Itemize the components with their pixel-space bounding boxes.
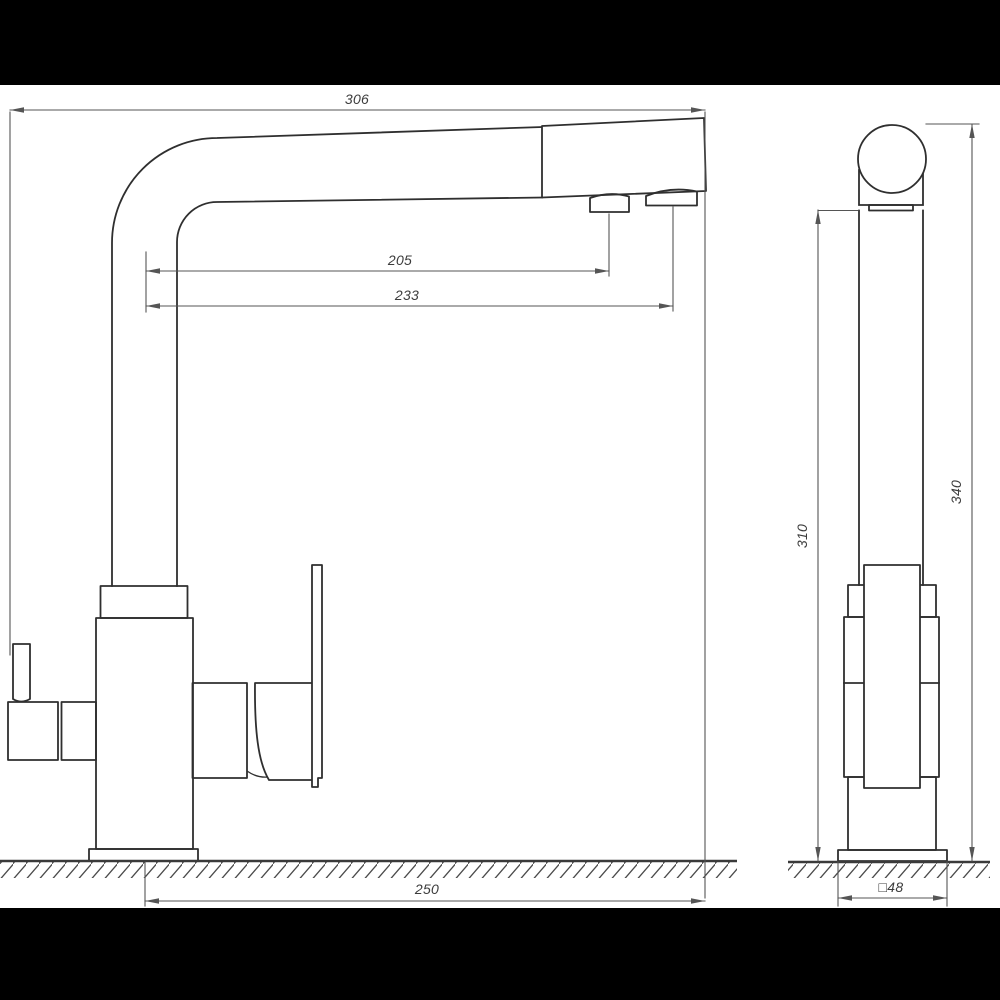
arrowhead: [933, 895, 947, 900]
base-plate-side: [838, 850, 947, 861]
arrowhead: [969, 124, 974, 138]
faucet-technical-drawing: 306 205 233 250 310: [0, 0, 1000, 1000]
drawing-canvas: 306 205 233 250 310: [0, 0, 1000, 1000]
arrowhead: [146, 268, 160, 273]
arrowhead: [691, 107, 705, 112]
arrowhead: [691, 898, 705, 903]
dim-250-label: 250: [414, 881, 439, 897]
aerator-outlet-1: [590, 194, 629, 212]
spout-inner-edge: [177, 198, 542, 587]
dim-340-label: 340: [948, 480, 964, 504]
arrowhead: [838, 895, 852, 900]
filter-valve-inner: [62, 702, 97, 760]
handle-knob-circle: [858, 125, 926, 193]
arrowhead: [815, 210, 820, 224]
knob-groove: [869, 205, 913, 211]
base-plate-front: [89, 849, 198, 861]
arrowhead: [146, 303, 160, 308]
faucet-body: [96, 618, 193, 849]
dim-233-label: 233: [394, 287, 419, 303]
arrowhead: [10, 107, 24, 112]
mixer-lever-front-face: [864, 565, 920, 788]
front-view: [8, 118, 706, 861]
dimensions: 306 205 233 250 310: [10, 91, 979, 906]
neck-collar: [101, 586, 188, 618]
riser-tube-side: [859, 211, 923, 586]
dim-48-label: □48: [879, 879, 904, 895]
arrowhead: [815, 847, 820, 861]
mixer-cartridge-housing: [193, 683, 248, 778]
dim-205-label: 205: [387, 252, 412, 268]
arrowhead: [145, 898, 159, 903]
filter-valve-outer: [8, 702, 58, 760]
filter-handle-lever: [13, 644, 30, 702]
mixer-handle-lever: [312, 565, 322, 787]
dim-306-label: 306: [345, 91, 369, 107]
ground-hatch-right: [788, 863, 990, 878]
ground-hatch-left: [0, 862, 737, 878]
mounting-surface: [0, 861, 990, 878]
side-view: [838, 125, 947, 861]
mixer-handle-hub: [255, 683, 316, 780]
arrowhead: [595, 268, 609, 273]
dim-310-label: 310: [794, 524, 810, 548]
arrowhead: [659, 303, 673, 308]
arrowhead: [969, 847, 974, 861]
spout-head: [542, 118, 706, 198]
